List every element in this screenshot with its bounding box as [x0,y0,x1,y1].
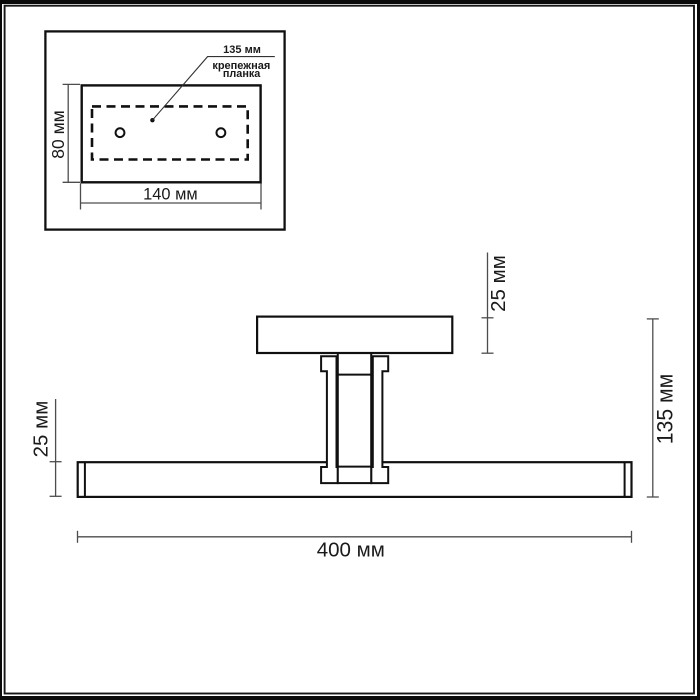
svg-text:140 мм: 140 мм [143,185,197,203]
svg-text:80 мм: 80 мм [48,110,68,158]
svg-text:135 мм: 135 мм [223,44,261,56]
svg-text:25 мм: 25 мм [29,401,52,458]
svg-text:планка: планка [223,68,261,80]
svg-text:135 мм: 135 мм [652,374,677,445]
svg-text:400 мм: 400 мм [317,538,385,561]
svg-text:25 мм: 25 мм [487,255,510,312]
